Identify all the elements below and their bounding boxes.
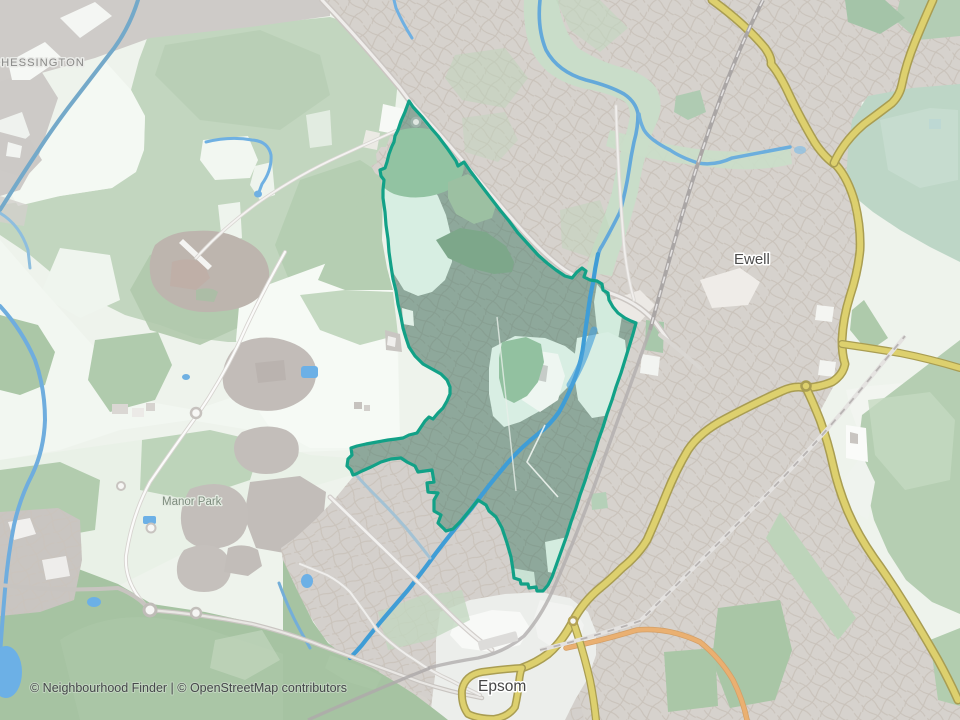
svg-text:Epsom: Epsom: [478, 678, 526, 695]
svg-text:© Neighbourhood Finder | © Ope: © Neighbourhood Finder | © OpenStreetMap…: [30, 681, 347, 695]
svg-text:Ewell: Ewell: [734, 251, 770, 268]
svg-text:Manor Park: Manor Park: [162, 496, 222, 508]
svg-text:CHESSINGTON: CHESSINGTON: [0, 57, 85, 69]
